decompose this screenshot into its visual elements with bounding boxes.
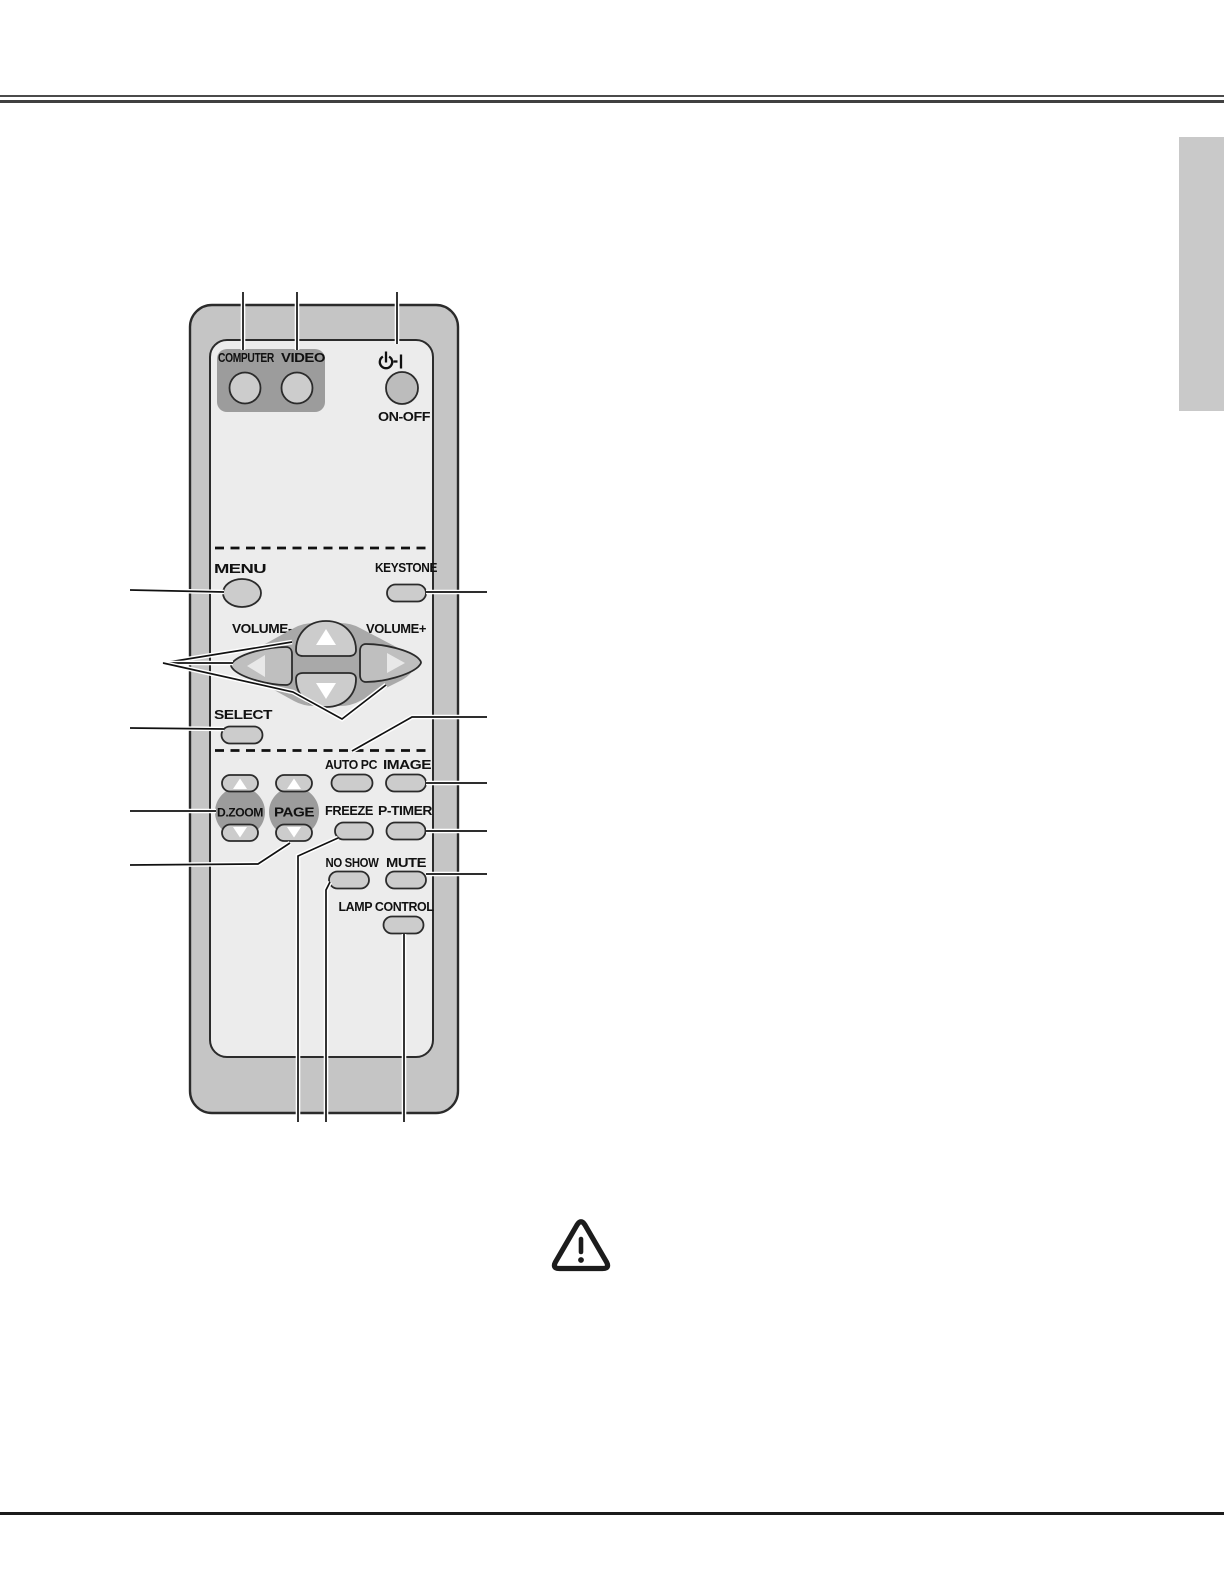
- auto-pc-button-label: AUTO PC: [325, 758, 377, 772]
- remote-control-diagram: COMPUTER VIDEO ON-OFF MENU KEYSTONE VOLU…: [100, 270, 520, 1140]
- on-off-button: [386, 372, 418, 404]
- select-button-label: SELECT: [214, 708, 273, 722]
- lamp-control-button-label: LAMP CONTROL: [339, 900, 435, 914]
- footer-rule: [0, 1512, 1224, 1515]
- select-callout-line: [130, 728, 224, 729]
- no-show-button-label: NO SHOW: [326, 856, 380, 870]
- computer-button: [230, 373, 261, 404]
- mute-button-label: MUTE: [386, 856, 426, 870]
- section-side-tab: [1179, 137, 1224, 411]
- warning-triangle-icon: [545, 1212, 620, 1282]
- menu-button: [223, 579, 261, 607]
- auto-pc-button: [332, 775, 373, 792]
- header-rule-thin: [0, 95, 1224, 97]
- header-rule-thick: [0, 100, 1224, 103]
- d-zoom-label: D.ZOOM: [217, 808, 263, 820]
- select-button: [222, 727, 263, 744]
- lamp-control-button: [384, 917, 424, 934]
- freeze-button: [335, 823, 373, 840]
- volume-plus-label: VOLUME+: [366, 622, 426, 636]
- no-show-button: [329, 872, 369, 889]
- computer-button-label: COMPUTER: [218, 351, 274, 365]
- menu-button-label: MENU: [214, 562, 267, 576]
- p-timer-button: [387, 823, 426, 840]
- video-button-label: VIDEO: [281, 351, 326, 365]
- image-button: [386, 775, 426, 792]
- freeze-button-label: FREEZE: [325, 804, 373, 818]
- warning-exclamation-dot: [578, 1257, 584, 1263]
- manual-page: COMPUTER VIDEO ON-OFF MENU KEYSTONE VOLU…: [0, 0, 1224, 1570]
- image-button-label: IMAGE: [383, 758, 431, 772]
- video-button: [282, 373, 313, 404]
- p-timer-button-label: P-TIMER: [378, 804, 432, 818]
- page-label: PAGE: [274, 806, 314, 820]
- keystone-button: [387, 585, 426, 602]
- keystone-button-label: KEYSTONE: [375, 561, 437, 575]
- mute-button: [386, 872, 426, 889]
- volume-minus-label: VOLUME-: [232, 622, 292, 636]
- on-off-button-label: ON-OFF: [378, 410, 431, 424]
